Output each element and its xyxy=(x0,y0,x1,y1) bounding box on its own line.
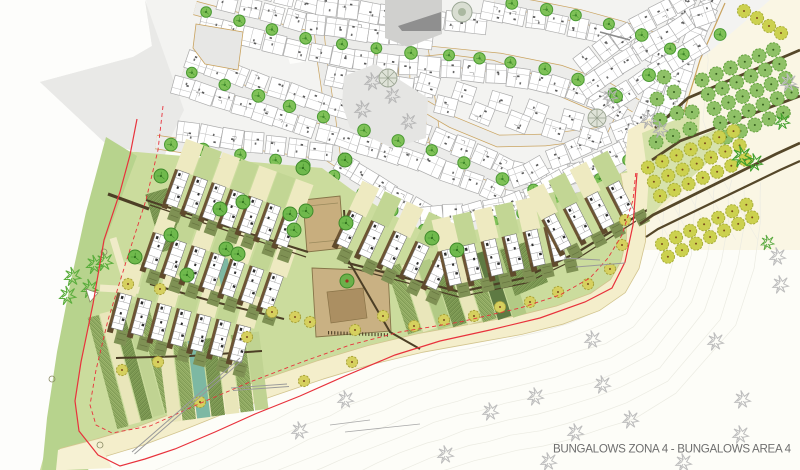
svg-text:BUNGALOWS ZONA 4 - BUNGAL: BUNGALOWS ZONA 4 - BUNGALOWS AREA 4 xyxy=(553,443,792,456)
